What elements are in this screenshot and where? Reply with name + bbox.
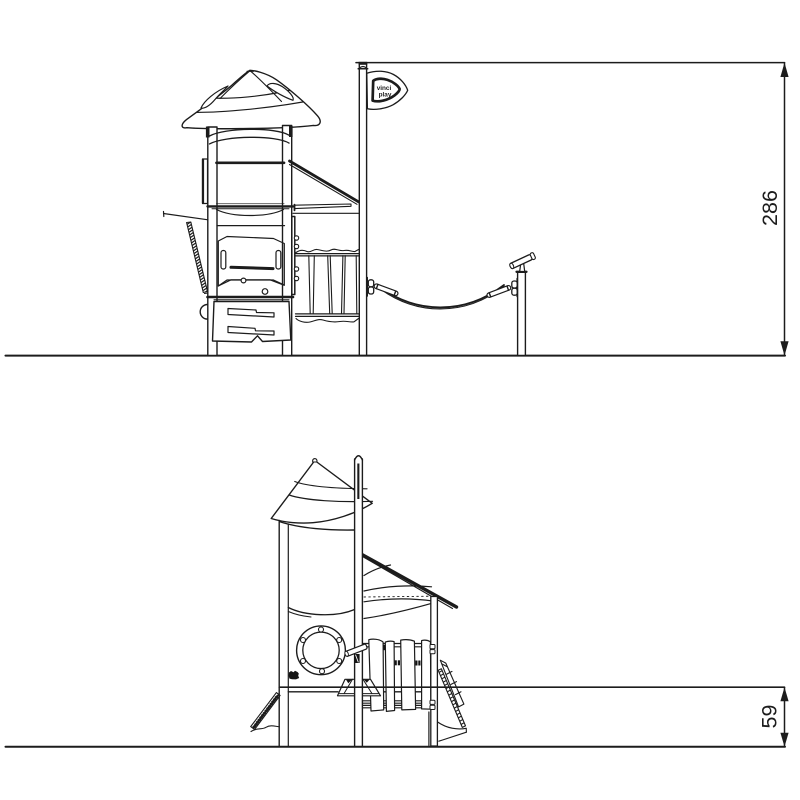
svg-text:286: 286 — [758, 190, 782, 226]
svg-text:59: 59 — [758, 705, 782, 729]
svg-text:play: play — [379, 92, 392, 99]
